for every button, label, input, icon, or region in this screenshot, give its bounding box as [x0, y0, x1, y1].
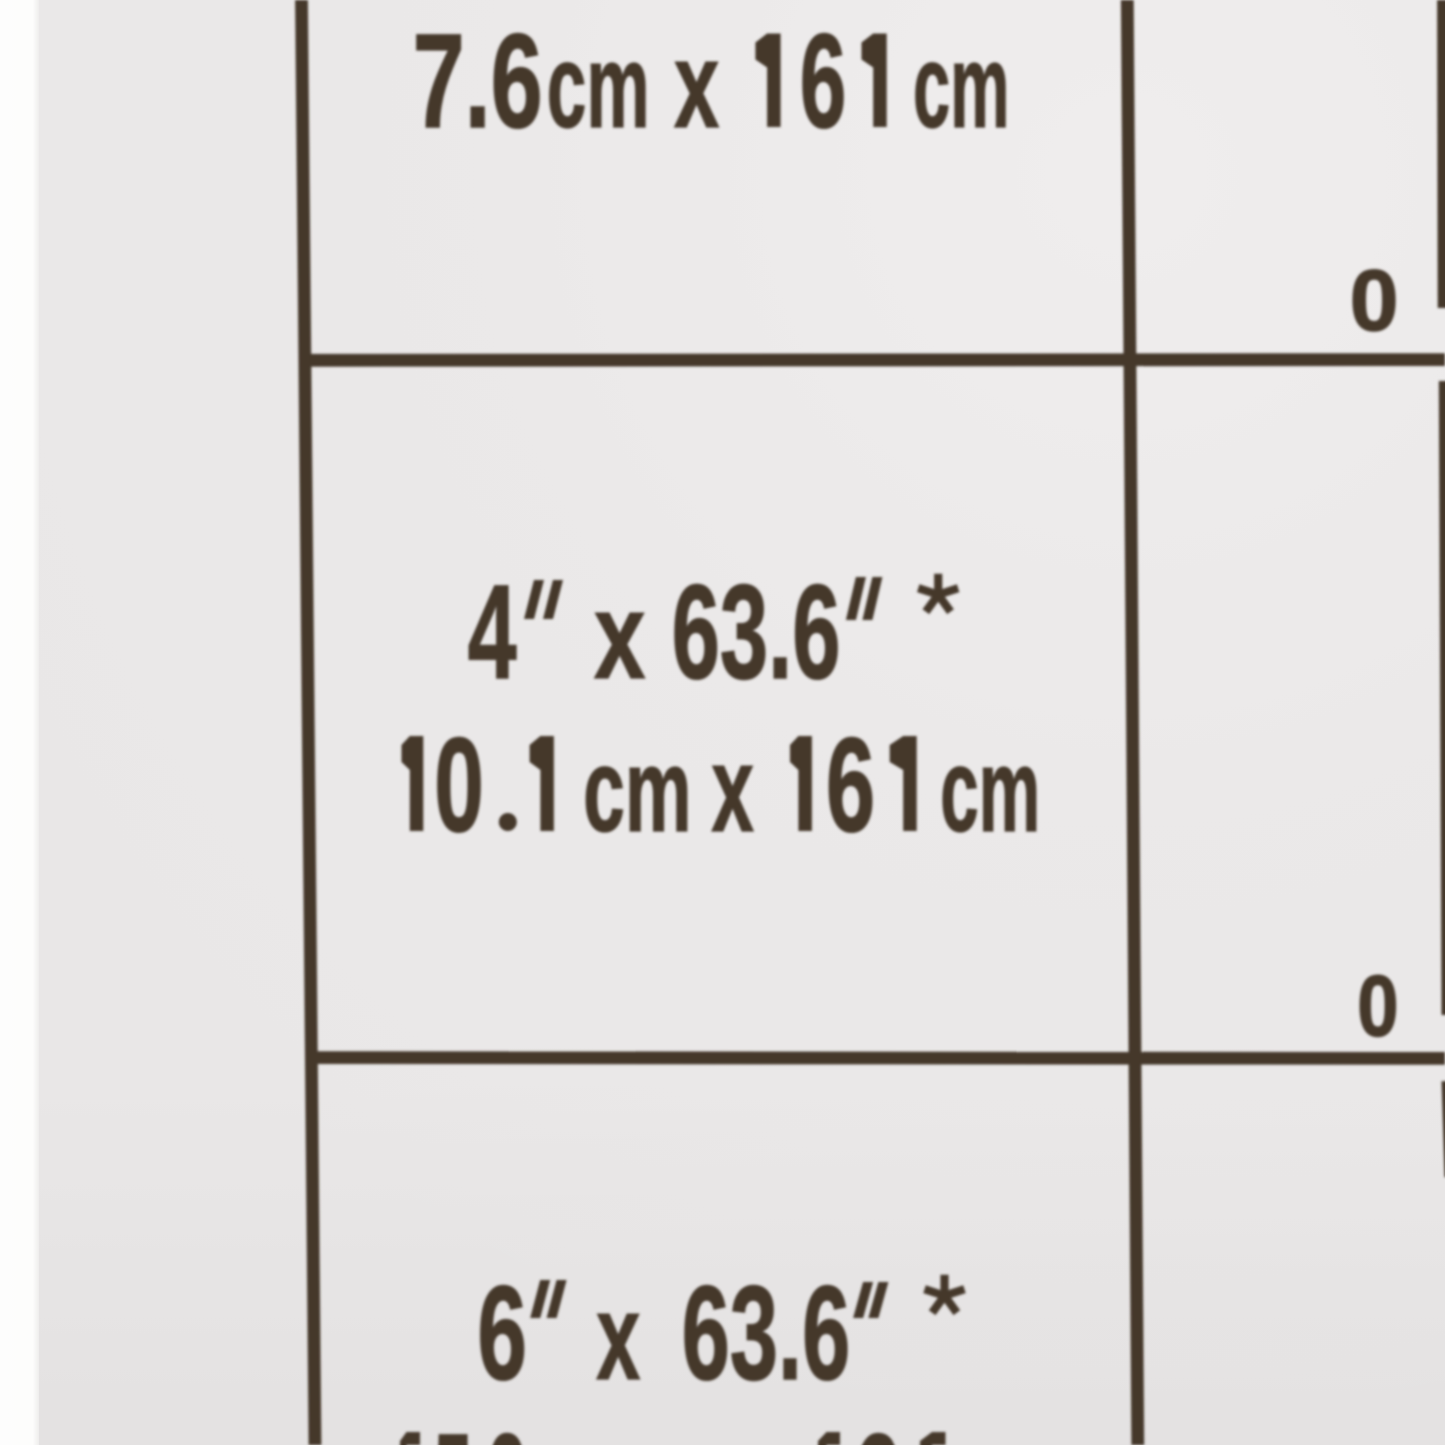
svg-text:6: 6 [477, 1259, 527, 1408]
svg-text:0: 0 [1357, 958, 1398, 1054]
svg-text:6: 6 [854, 1405, 901, 1445]
svg-text:63.6: 63.6 [672, 557, 841, 707]
svg-text:cm: cm [940, 723, 1040, 856]
svg-text:6: 6 [826, 711, 875, 861]
svg-text:x: x [594, 568, 645, 705]
svg-text:cm: cm [583, 724, 691, 857]
svg-text:x: x [596, 1268, 640, 1405]
svg-text:63.6: 63.6 [682, 1258, 851, 1408]
svg-text:cm: cm [913, 21, 1010, 153]
svg-text:x: x [674, 17, 719, 154]
svg-text:cm: cm [547, 19, 650, 153]
svg-text:2: 2 [488, 1406, 526, 1445]
svg-text:0: 0 [1350, 253, 1399, 349]
svg-text:0: 0 [434, 711, 484, 860]
svg-text:5: 5 [434, 1406, 472, 1445]
svg-text:x: x [711, 721, 754, 858]
svg-text:6: 6 [800, 6, 847, 156]
svg-text:7.6: 7.6 [413, 6, 543, 156]
svg-text:4: 4 [468, 557, 517, 707]
